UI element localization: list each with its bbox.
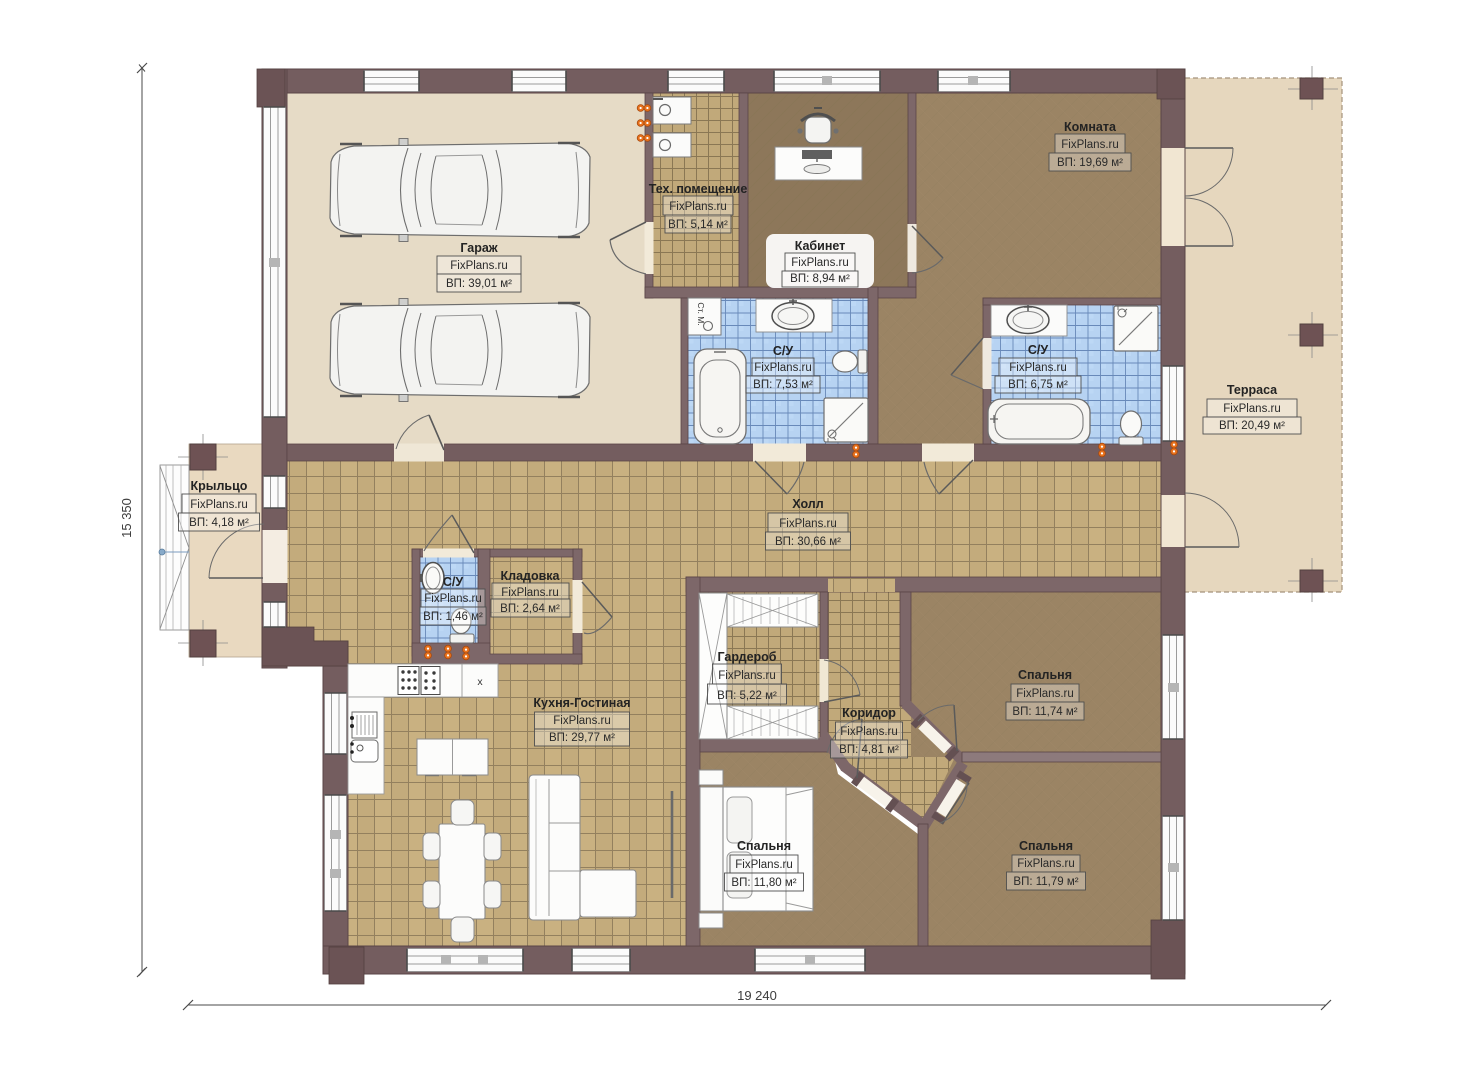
svg-text:FixPlans.ru: FixPlans.ru: [190, 499, 248, 511]
svg-text:FixPlans.ru: FixPlans.ru: [754, 362, 812, 374]
svg-text:ВП: 5,22 м²: ВП: 5,22 м²: [717, 690, 777, 702]
svg-text:FixPlans.ru: FixPlans.ru: [553, 715, 611, 727]
svg-text:Спальня: Спальня: [1018, 668, 1072, 682]
svg-text:Спальня: Спальня: [1019, 839, 1073, 853]
svg-text:ВП: 11,74 м²: ВП: 11,74 м²: [1012, 706, 1077, 718]
svg-text:С/У: С/У: [443, 575, 464, 589]
svg-text:FixPlans.ru: FixPlans.ru: [450, 260, 508, 272]
svg-text:ВП: 30,66 м²: ВП: 30,66 м²: [775, 536, 841, 548]
svg-text:ВП: 1,46 м²: ВП: 1,46 м²: [423, 611, 483, 623]
svg-text:ВП: 11,80 м²: ВП: 11,80 м²: [731, 877, 796, 889]
svg-text:ВП: 4,81 м²: ВП: 4,81 м²: [839, 744, 899, 756]
svg-text:Комната: Комната: [1064, 120, 1117, 134]
svg-text:15 350: 15 350: [119, 498, 134, 538]
svg-text:Терраса: Терраса: [1227, 383, 1278, 397]
svg-text:FixPlans.ru: FixPlans.ru: [1016, 688, 1074, 700]
svg-text:FixPlans.ru: FixPlans.ru: [779, 518, 837, 530]
svg-text:Гардероб: Гардероб: [717, 650, 776, 664]
svg-text:С/У: С/У: [773, 344, 794, 358]
svg-text:ВП: 8,94 м²: ВП: 8,94 м²: [790, 273, 850, 285]
svg-text:x: x: [477, 676, 483, 688]
svg-text:FixPlans.ru: FixPlans.ru: [1017, 858, 1075, 870]
svg-text:FixPlans.ru: FixPlans.ru: [424, 593, 482, 605]
svg-text:ВП: 5,14 м²: ВП: 5,14 м²: [668, 219, 728, 231]
svg-text:FixPlans.ru: FixPlans.ru: [1061, 139, 1119, 151]
svg-text:FixPlans.ru: FixPlans.ru: [1223, 403, 1281, 415]
svg-text:FixPlans.ru: FixPlans.ru: [840, 726, 898, 738]
svg-text:Кухня-Гостиная: Кухня-Гостиная: [533, 696, 630, 710]
svg-text:ВП: 29,77 м²: ВП: 29,77 м²: [549, 732, 615, 744]
svg-text:ВП: 11,79 м²: ВП: 11,79 м²: [1013, 876, 1078, 888]
svg-text:Кладовка: Кладовка: [501, 569, 561, 583]
svg-text:Спальня: Спальня: [737, 839, 791, 853]
svg-text:FixPlans.ru: FixPlans.ru: [735, 859, 793, 871]
svg-text:Тех. помещение: Тех. помещение: [649, 182, 748, 196]
svg-text:Ст. М.: Ст. М.: [696, 302, 706, 325]
svg-text:ВП: 2,64 м²: ВП: 2,64 м²: [500, 603, 560, 615]
svg-text:19 240: 19 240: [737, 988, 777, 1003]
svg-text:FixPlans.ru: FixPlans.ru: [501, 587, 559, 599]
svg-text:ВП: 6,75 м²: ВП: 6,75 м²: [1008, 379, 1068, 391]
svg-text:ВП: 20,49 м²: ВП: 20,49 м²: [1219, 420, 1285, 432]
svg-text:Гараж: Гараж: [460, 241, 497, 255]
svg-text:FixPlans.ru: FixPlans.ru: [669, 201, 727, 213]
svg-text:Холл: Холл: [792, 497, 823, 511]
svg-text:Коридор: Коридор: [842, 706, 896, 720]
svg-text:С/У: С/У: [1028, 343, 1049, 357]
svg-text:Кабинет: Кабинет: [795, 239, 846, 253]
svg-text:ВП: 19,69 м²: ВП: 19,69 м²: [1057, 157, 1123, 169]
svg-text:ВП: 4,18 м²: ВП: 4,18 м²: [189, 517, 249, 529]
svg-text:FixPlans.ru: FixPlans.ru: [791, 257, 849, 269]
svg-text:FixPlans.ru: FixPlans.ru: [1009, 362, 1067, 374]
svg-text:ВП: 39,01 м²: ВП: 39,01 м²: [446, 278, 512, 290]
svg-text:Крыльцо: Крыльцо: [191, 479, 248, 493]
svg-text:ВП: 7,53 м²: ВП: 7,53 м²: [753, 379, 813, 391]
svg-text:FixPlans.ru: FixPlans.ru: [718, 670, 776, 682]
